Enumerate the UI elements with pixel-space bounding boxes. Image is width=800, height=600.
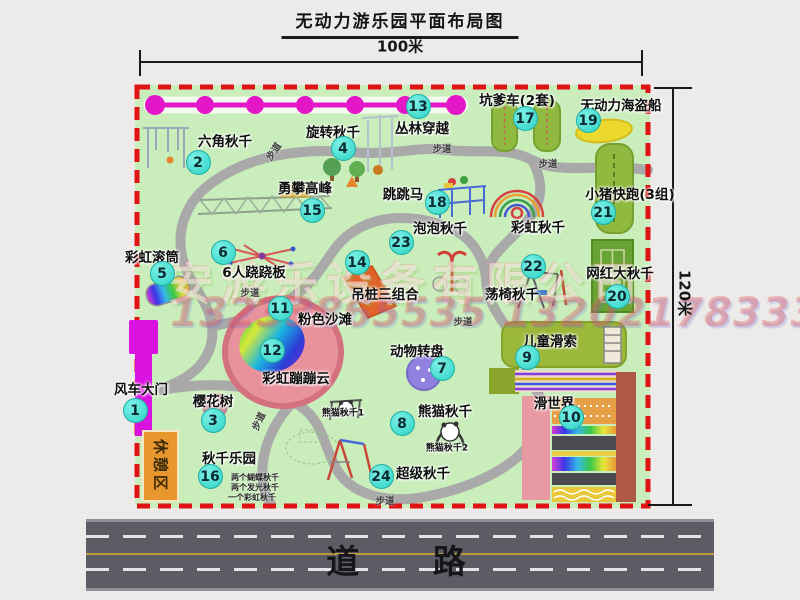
label-rainbow-roller: 彩虹滚筒 [125,246,179,266]
badge-10: 10 [559,405,584,430]
footpath-label-6: 步道 [375,493,394,507]
label-windmill-gate: 风车大门 [114,378,168,398]
badge-3: 3 [201,408,226,433]
badge-13: 13 [406,94,431,119]
footpath-label-3: 步道 [538,156,557,170]
page-title: 无动力游乐园平面布局图 [282,7,519,39]
badge-22: 22 [521,254,546,279]
label-super-swing: 超级秋千 [396,462,450,482]
road: 道 路 [86,519,714,591]
label-jungle-crossing: 丛林穿越 [395,117,449,137]
badge-2: 2 [186,150,211,175]
rotary-swing-icon [362,115,398,175]
label-panda-swing-2: 熊猫秋千2 [426,441,468,454]
footpath-label-4: 步道 [240,285,259,299]
label-panda-swing-1: 熊猫秋千1 [322,406,364,419]
label-chair-swing: 荡椅秋千 [485,283,539,303]
height-dimension-label: 120米 [675,270,696,316]
label-rotary-swing: 旋转秋千 [306,121,360,141]
label-pit-daddy-car: 坑爹车(2套) [479,89,555,109]
badge-16: 16 [198,464,223,489]
badge-21: 21 [591,200,616,225]
badge-9: 9 [515,345,540,370]
label-hexagon-swing: 六角秋千 [198,130,252,150]
width-dimension-label: 100米 [377,36,423,57]
badge-24: 24 [369,464,394,489]
badge-6: 6 [211,240,236,265]
rest-area-label: 休憩区 [150,439,171,493]
badge-11: 11 [268,296,293,321]
badge-17: 17 [513,106,538,131]
playground-layout-map: 无动力游乐园平面布局图 [0,0,800,600]
footpath-label-2: 步道 [432,141,451,155]
label-bubble-swing: 泡泡秋千 [413,217,467,237]
badge-4: 4 [331,136,356,161]
badge-18: 18 [425,190,450,215]
road-label: 道 路 [86,535,714,583]
badge-20: 20 [605,284,630,309]
label-rainbow-swing: 彩虹秋千 [511,216,565,236]
badge-5: 5 [150,261,175,286]
rest-area-box: 休憩区 [142,430,179,502]
badge-7: 7 [430,356,455,381]
label-big-web-swing: 网红大秋千 [586,262,654,282]
badge-19: 19 [576,108,601,133]
badge-23: 23 [389,230,414,255]
label-jumping-horse: 跳跳马 [383,183,424,203]
badge-14: 14 [345,250,370,275]
label-six-seesaw: 6人跷跷板 [222,261,285,281]
badge-12: 12 [260,338,285,363]
label-peak-climbing: 勇攀高峰 [278,177,332,197]
swing-park-note-3: 一个彩虹秋千 [228,492,276,503]
label-rainbow-bounce-cloud: 彩虹蹦蹦云 [262,367,330,387]
badge-8: 8 [390,411,415,436]
label-hanging-piles: 吊桩三组合 [351,283,419,303]
label-pink-beach: 粉色沙滩 [298,308,352,328]
badge-15: 15 [300,198,325,223]
label-panda-swing: 熊猫秋千 [418,400,472,420]
footpath-label-5: 步道 [453,314,472,328]
badge-1: 1 [123,398,148,423]
